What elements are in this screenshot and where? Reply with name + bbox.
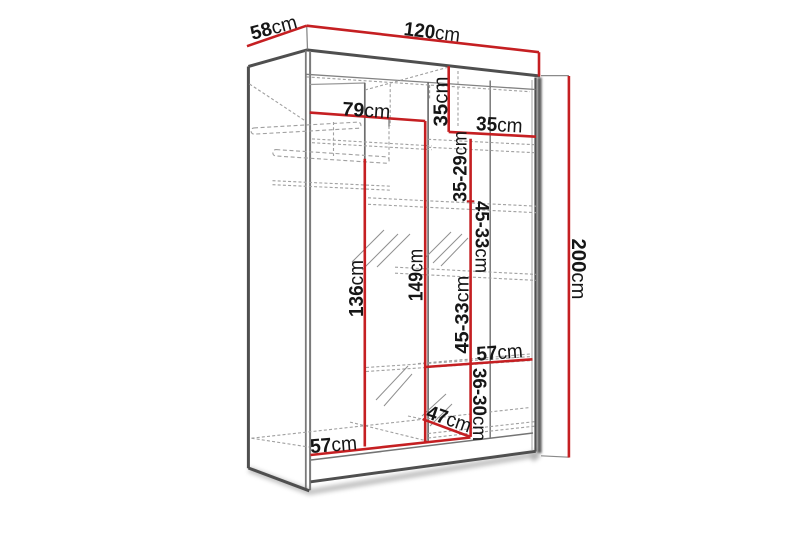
svg-text:200cm: 200cm xyxy=(567,239,589,300)
svg-text:79cm: 79cm xyxy=(342,98,391,123)
svg-text:120cm: 120cm xyxy=(403,18,462,47)
svg-text:57cm: 57cm xyxy=(476,340,524,365)
svg-text:58cm: 58cm xyxy=(248,11,300,45)
svg-text:45-33cm: 45-33cm xyxy=(453,276,474,354)
svg-text:47cm: 47cm xyxy=(424,402,475,438)
svg-text:36-30cm: 36-30cm xyxy=(468,368,489,441)
svg-text:57cm: 57cm xyxy=(309,433,358,459)
svg-text:149cm: 149cm xyxy=(406,249,428,302)
svg-text:136cm: 136cm xyxy=(346,260,368,317)
svg-text:35-29cm: 35-29cm xyxy=(450,131,471,202)
svg-text:45-33cm: 45-33cm xyxy=(471,201,492,273)
svg-text:35cm: 35cm xyxy=(476,113,524,137)
svg-text:35cm: 35cm xyxy=(430,77,452,127)
